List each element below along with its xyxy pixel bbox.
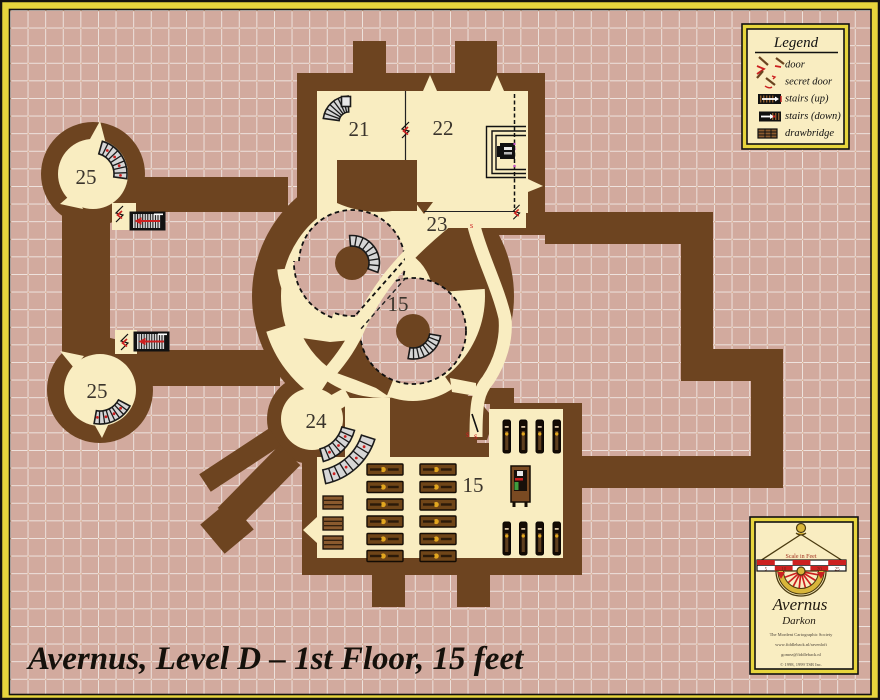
svg-text:Darkon: Darkon	[781, 615, 816, 627]
svg-text:23: 23	[427, 212, 448, 236]
svg-text:secret door: secret door	[785, 77, 833, 88]
svg-text:Avernus, Level D – 1st Floor,: Avernus, Level D – 1st Floor, 15 feet	[26, 641, 524, 677]
svg-text:s: s	[474, 431, 478, 441]
svg-text:15: 15	[463, 473, 484, 497]
svg-text:Avernus: Avernus	[772, 595, 828, 614]
svg-text:s: s	[470, 221, 473, 230]
svg-text:25: 25	[835, 568, 841, 573]
svg-text:www.fiddleback.nl/ravenloft: www.fiddleback.nl/ravenloft	[775, 642, 827, 647]
svg-text:s: s	[466, 429, 470, 439]
svg-text:25: 25	[76, 165, 97, 189]
svg-text:Legend: Legend	[773, 35, 819, 51]
svg-text:The Mordent Cartographic Socie: The Mordent Cartographic Society	[770, 632, 834, 637]
svg-text:21: 21	[349, 117, 370, 141]
svg-text:stairs (down): stairs (down)	[785, 111, 841, 122]
svg-text:door: door	[785, 60, 806, 71]
svg-text:15: 15	[388, 292, 409, 316]
svg-text:24: 24	[306, 409, 328, 433]
svg-text:22: 22	[433, 116, 454, 140]
svg-text:Scale in Feet: Scale in Feet	[786, 554, 817, 560]
svg-text:drawbridge: drawbridge	[785, 128, 834, 139]
svg-text:gomez@fiddleback.nl: gomez@fiddleback.nl	[781, 652, 822, 657]
svg-text:stairs (up): stairs (up)	[785, 94, 829, 105]
svg-text:25: 25	[87, 379, 108, 403]
